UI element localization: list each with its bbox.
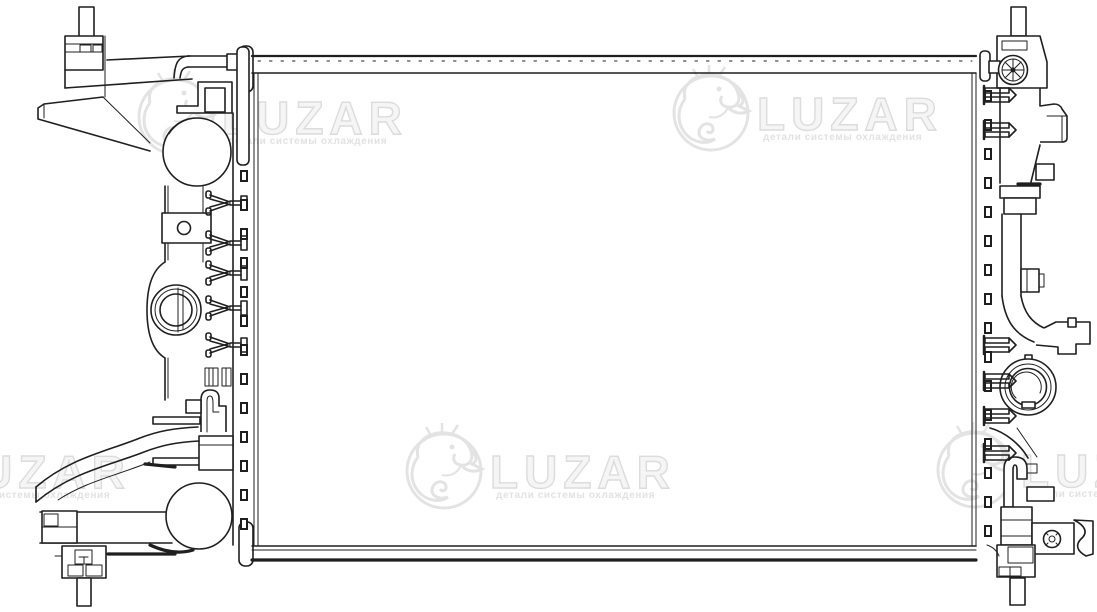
vent-hatch-marks: [205, 368, 231, 386]
mounting-pin-bottom-right: [1010, 578, 1025, 605]
step-flange: [1036, 318, 1090, 354]
overflow-pipe: [174, 54, 238, 78]
bottom-bracket-right: [987, 545, 1035, 577]
access-plate: [162, 213, 211, 243]
side-bracket-right: [1021, 269, 1044, 292]
clip-housing: [177, 82, 232, 113]
watermark-top-right: [674, 65, 943, 150]
bottom-circle-boss: [166, 483, 232, 549]
flange-joint: [1000, 186, 1040, 214]
spring-clip-1: [206, 191, 247, 215]
upper-step-bracket: [1040, 104, 1067, 142]
right-tank: [980, 7, 1093, 605]
hose-end-box: [42, 511, 77, 543]
lower-box: [199, 436, 233, 470]
outlet-elbow: [1002, 296, 1044, 342]
watermark-layer: [0, 65, 1097, 508]
mounting-pin-bottom-left: [77, 578, 91, 606]
top-left-bracket: [65, 36, 103, 70]
mounting-pin-top-left: [79, 7, 94, 37]
inlet-port: [147, 262, 201, 358]
watermark-bottom-center: [407, 423, 676, 508]
radiator-technical-drawing: LUZAR детали системы охлаждения: [0, 0, 1097, 612]
side-rail-upper: [153, 417, 200, 424]
hook-bracket-left: [186, 390, 226, 432]
drain-cap: [999, 56, 1028, 85]
standpipe-tube: [237, 47, 249, 165]
left-tank: [36, 7, 249, 606]
drawing-canvas: LUZAR детали системы охлаждения: [0, 0, 1097, 612]
side-wedge-bracket: [38, 97, 150, 151]
connector-block: [55, 546, 106, 578]
retainer-pin-3: [984, 336, 1016, 354]
mounting-pin-top-right: [1011, 7, 1026, 36]
clamp-strap: [1074, 520, 1093, 556]
